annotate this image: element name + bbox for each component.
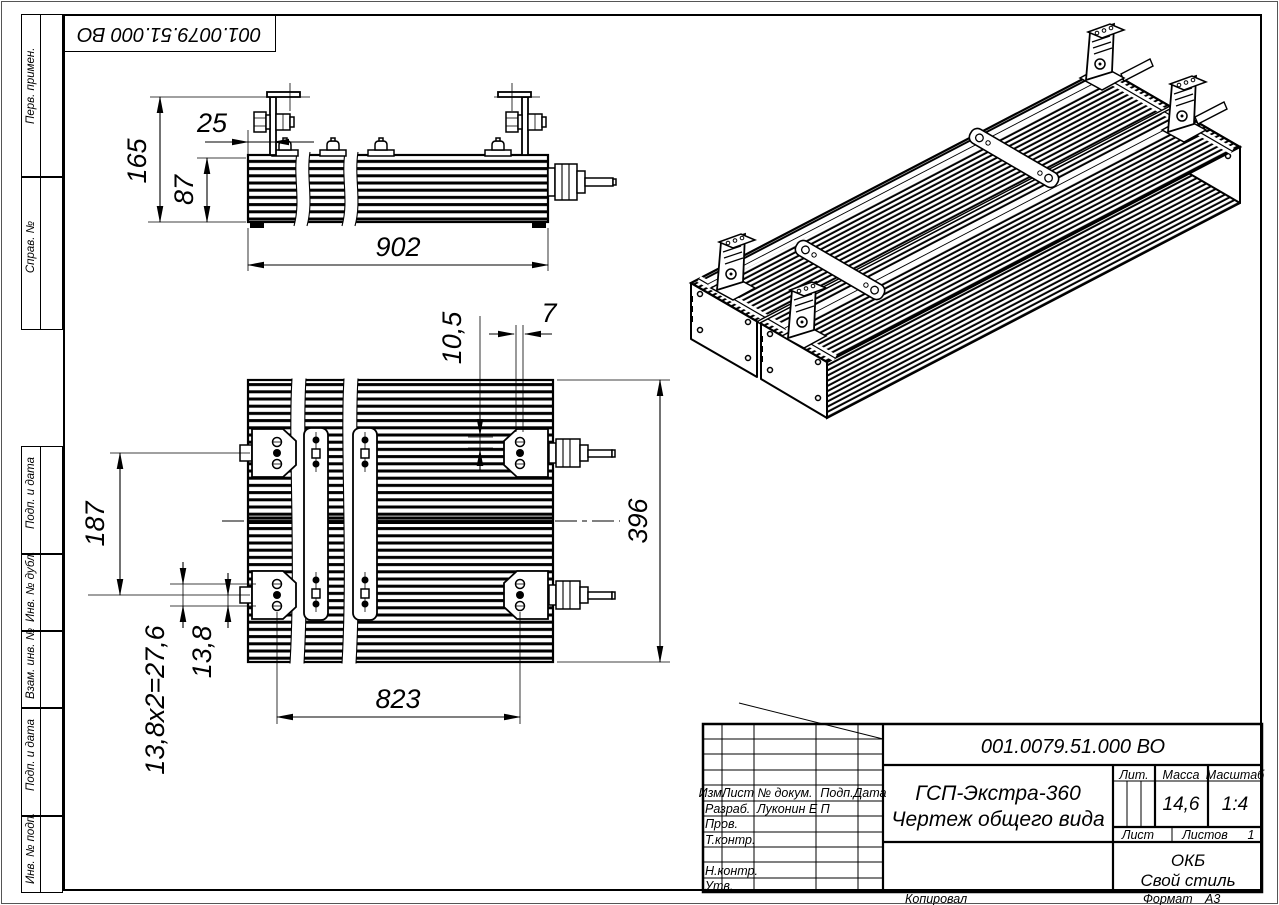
side-view-body: [248, 150, 548, 228]
tb-scale-value: 1:4: [1222, 794, 1248, 815]
mirrored-designation: 001.0079.51.000 ВО: [77, 22, 261, 45]
tb-title-line2: Чертеж общего вида: [891, 808, 1104, 831]
tb-header-ndokum: № докум.: [757, 786, 812, 800]
tb-row-razrab: Разраб.: [705, 802, 750, 816]
side-view-drawing: 165 87 25 902: [100, 80, 640, 285]
plan-view-body: [222, 377, 620, 665]
margin-box-divider: [40, 555, 41, 630]
margin-box-inv-dubl: Инв. № дубл.: [21, 554, 63, 631]
tb-sheets-label: Листов: [1181, 828, 1228, 842]
isometric-view-drawing: [650, 30, 1272, 450]
dim-25: 25: [196, 108, 228, 138]
plan-view-drawing: 396 187 13,8х2=27,6 13,8 823 7 10,5: [60, 300, 690, 730]
tb-company-line2: Свой стиль: [1140, 871, 1235, 890]
margin-label: Подп. и дата: [25, 721, 37, 791]
margin-box-divider: [40, 709, 41, 815]
margin-box-sprav-n: Справ. №: [21, 177, 63, 330]
margin-label: Инв. № подп.: [25, 814, 37, 884]
margin-label: Справ. №: [25, 212, 37, 282]
mirrored-designation-box: 001.0079.51.000 ВО: [63, 14, 276, 52]
margin-label: Перв. примен.: [25, 54, 37, 124]
margin-box-divider: [40, 178, 41, 329]
margin-box-inv-podl: Инв. № подп.: [21, 816, 63, 893]
format-label: Формат: [1143, 892, 1193, 905]
dim-165: 165: [122, 137, 152, 183]
dim-823: 823: [375, 684, 420, 714]
tb-designation: 001.0079.51.000 ВО: [981, 736, 1165, 758]
tb-mass-label: Масса: [1163, 768, 1200, 782]
tb-title-line1: ГСП-Экстра-360: [915, 782, 1081, 805]
tb-row-tkontr: Т.контр.: [705, 833, 755, 847]
tb-lit-label: Лит.: [1118, 768, 1148, 782]
title-block: Изм. Лист № докум. Подп. Дата Разраб. Лу…: [702, 723, 1264, 893]
dim-187: 187: [80, 500, 110, 546]
side-view-right-bracket: [498, 92, 546, 155]
tb-scale-label: Масштаб: [1206, 768, 1265, 782]
dim-7: 7: [541, 298, 557, 328]
margin-box-divider: [40, 817, 41, 892]
margin-box-vzam-inv: Взам. инв. №: [21, 631, 63, 708]
dim-396: 396: [623, 497, 653, 543]
copied-label: Копировал: [905, 892, 967, 905]
margin-box-divider: [40, 447, 41, 553]
side-view-cable-gland: [548, 164, 616, 200]
tb-row-nkontr: Н.контр.: [705, 864, 758, 878]
margin-box-divider: [40, 632, 41, 707]
tb-mass-value: 14,6: [1163, 794, 1200, 815]
plan-view-cable-glands: [549, 439, 615, 609]
margin-label: Взам. инв. №: [25, 629, 37, 699]
drawing-sheet: Перв. примен. Справ. № Подп. и дата Инв.…: [0, 0, 1279, 905]
dim-13-8: 13,8: [187, 626, 217, 679]
tb-sheet-label: Лист: [1121, 828, 1154, 842]
dim-902: 902: [375, 232, 420, 262]
tb-header-data: Дата: [852, 786, 887, 800]
tb-sheets-value: 1: [1248, 828, 1255, 842]
dim-10-5: 10,5: [437, 311, 467, 365]
tb-company-line1: ОКБ: [1171, 851, 1205, 870]
format-value: А3: [1205, 892, 1220, 905]
margin-box-podp-data-2: Подп. и дата: [21, 708, 63, 816]
dim-27-6: 13,8х2=27,6: [140, 624, 170, 774]
title-block-texts: Изм. Лист № докум. Подп. Дата Разраб. Лу…: [699, 736, 1265, 893]
dim-87: 87: [169, 174, 199, 205]
tb-row-utv: Утв.: [704, 879, 733, 893]
margin-box-podp-data-1: Подп. и дата: [21, 446, 63, 554]
tb-header-podp: Подп.: [820, 786, 853, 800]
side-view-left-bracket: [254, 92, 300, 155]
margin-box-perv-primen: Перв. примен.: [21, 14, 63, 177]
tb-row-prov: Пров.: [705, 817, 738, 831]
margin-label: Инв. № дубл.: [25, 552, 37, 622]
tb-header-list: Лист: [721, 786, 754, 800]
margin-box-divider: [40, 15, 41, 176]
iso-body: [690, 68, 1240, 418]
tb-razrab-name: Луконин Е П: [756, 802, 831, 816]
margin-label: Подп. и дата: [25, 459, 37, 529]
